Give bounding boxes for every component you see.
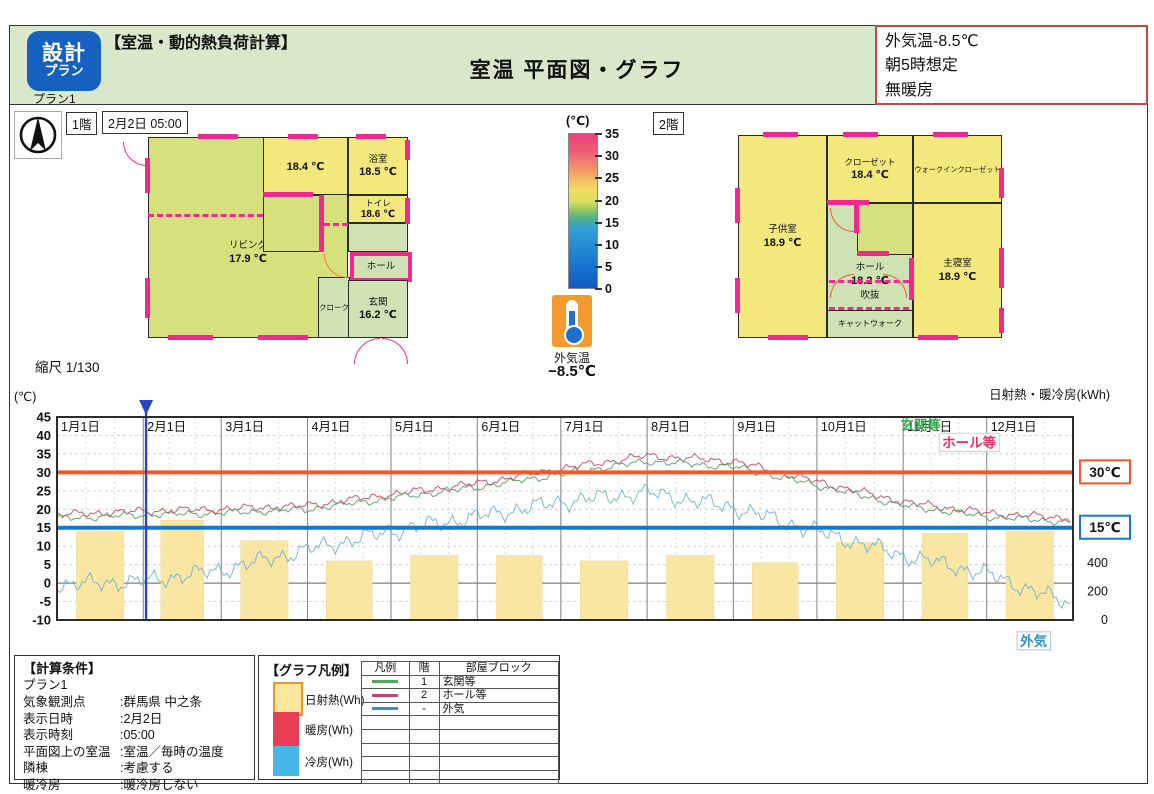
room-kids: 子供室 18.9 ℃ — [738, 135, 827, 338]
scale-tick: 0 — [605, 284, 635, 294]
legend-empty-row — [362, 729, 559, 743]
svg-text:15: 15 — [37, 520, 51, 535]
wall-accent — [405, 198, 410, 224]
graph-legend-box: 【グラフ凡例】 日射熱(Wh) 暖房(Wh) 冷房(Wh) 凡例 階 部屋ブロッ… — [258, 655, 560, 780]
svg-text:-10: -10 — [32, 613, 51, 628]
section-title: 【室温・動的熱負荷計算】 — [105, 29, 297, 53]
color-scale-unit: (℃) — [566, 113, 589, 128]
svg-text:200: 200 — [1087, 585, 1108, 599]
svg-text:0: 0 — [1101, 613, 1108, 627]
wall-accent — [763, 132, 798, 137]
legend-row-outdoor: - 外気 — [362, 702, 559, 716]
outdoor-thermometer-icon — [552, 295, 592, 347]
legend-swatch-heating — [273, 712, 299, 746]
legend-swatch-cooling-label: 冷房(Wh) — [305, 754, 353, 770]
wall-accent — [145, 278, 150, 318]
svg-text:400: 400 — [1087, 556, 1108, 570]
wall-accent — [843, 132, 878, 137]
room-hall-1f: ホール — [350, 252, 412, 282]
legend-empty-row — [362, 757, 559, 771]
wall-accent — [258, 335, 308, 340]
note-line-no-heating: 無暖房 — [885, 79, 1138, 103]
legend-empty-row — [362, 743, 559, 757]
svg-text:0: 0 — [44, 576, 51, 591]
legend-table-header-row: 凡例 階 部屋ブロック — [362, 662, 559, 676]
room-catwalk: キャットウォーク — [827, 310, 913, 338]
scale-tick: 15 — [605, 218, 635, 228]
svg-text:40: 40 — [37, 428, 51, 443]
svg-text:2月1日: 2月1日 — [147, 420, 186, 434]
wall-accent — [999, 168, 1004, 198]
svg-text:5: 5 — [44, 557, 51, 572]
svg-text:12月1日: 12月1日 — [991, 420, 1037, 434]
svg-text:25: 25 — [37, 483, 51, 498]
wall-accent — [356, 134, 386, 139]
wall-accent — [999, 248, 1004, 288]
svg-text:9月1日: 9月1日 — [737, 420, 776, 434]
wall-accent — [198, 134, 238, 139]
legend-title: 【グラフ凡例】 — [266, 660, 357, 679]
wall-accent — [288, 134, 318, 139]
legend-swatch-heating-label: 暖房(Wh) — [305, 722, 353, 738]
svg-text:外気: 外気 — [1020, 633, 1048, 649]
conditions-title: 【計算条件】 — [23, 660, 246, 677]
legend-empty-row — [362, 716, 559, 730]
svg-text:-5: -5 — [39, 594, 51, 609]
scale-tick: 35 — [605, 129, 635, 139]
svg-text:30: 30 — [37, 465, 51, 480]
wall-accent — [768, 335, 808, 340]
floor1-plan: リビング 17.9 ℃ 18.4 ℃ 浴室 18.5 ℃ トイレ 18.6 ℃ … — [138, 128, 428, 350]
floor1-tab[interactable]: 1階 — [66, 112, 97, 135]
svg-text:4月1日: 4月1日 — [312, 420, 351, 434]
condition-row: 暖冷房:暖冷房しない — [23, 777, 246, 794]
svg-text:7月1日: 7月1日 — [565, 420, 604, 434]
condition-row: 表示時刻:05:00 — [23, 727, 246, 744]
room-wic: ウォークインクローゼット — [913, 135, 1002, 203]
wall-accent — [909, 258, 914, 300]
room-master: 主寝室 18.9 ℃ — [913, 203, 1002, 338]
condition-row: 隣棟:考慮する — [23, 760, 246, 777]
svg-text:日射熱・暖冷房(kWh): 日射熱・暖冷房(kWh) — [989, 387, 1110, 402]
legend-swatch-solar — [273, 682, 303, 716]
temperature-color-scale: 35 30 25 20 15 10 5 0 — [568, 133, 598, 289]
compass-box — [14, 111, 62, 159]
svg-text:(℃): (℃) — [14, 390, 36, 404]
calc-conditions-box: 【計算条件】 プラン1 気象観測点:群馬県 中之条 表示日時:2月2日 表示時刻… — [14, 655, 255, 780]
condition-row: 平面図上の室温:室温／毎時の温度 — [23, 744, 246, 761]
wall-accent-dashed — [829, 307, 909, 310]
door-arc-icon — [382, 338, 408, 364]
svg-text:玄関等: 玄関等 — [900, 417, 941, 433]
svg-text:10月1日: 10月1日 — [821, 420, 867, 434]
note-line-time: 朝5時想定 — [885, 54, 1138, 78]
scale-note: 縮尺 1/130 — [35, 356, 100, 376]
room-entrance: 玄関 16.2 ℃ — [348, 280, 408, 338]
svg-text:45: 45 — [37, 410, 51, 425]
condition-row: 表示日時:2月2日 — [23, 711, 246, 728]
legend-swatch-cooling — [273, 746, 299, 776]
series-line-swatch — [372, 694, 398, 697]
wall-accent — [405, 140, 410, 160]
scale-tick: 25 — [605, 173, 635, 183]
room-washroom: 18.4 ℃ — [263, 137, 348, 195]
svg-text:1月1日: 1月1日 — [61, 420, 100, 434]
wall-accent — [168, 335, 213, 340]
svg-text:8月1日: 8月1日 — [651, 420, 690, 434]
legend-swatch-solar-label: 日射熱(Wh) — [305, 692, 364, 708]
floor2-plan: 子供室 18.9 ℃ クローゼット 18.4 ℃ ウォークインクローゼット ホー… — [723, 128, 1013, 350]
room-back-hall — [348, 223, 408, 252]
svg-text:15℃: 15℃ — [1089, 520, 1120, 535]
scale-tick: 10 — [605, 240, 635, 250]
condition-note-box: 外気温-8.5℃ 朝5時想定 無暖房 — [875, 25, 1148, 105]
svg-text:35: 35 — [37, 446, 51, 461]
wall-accent — [827, 200, 869, 205]
wall-accent — [999, 308, 1004, 333]
room-toilet: トイレ 18.6 ℃ — [348, 195, 408, 223]
wall-accent — [854, 203, 859, 233]
wall-accent — [918, 335, 958, 340]
legend-series-table: 凡例 階 部屋ブロック 1 玄関等 2 ホール等 - 外気 — [361, 661, 559, 784]
wall-accent — [857, 251, 889, 256]
series-line-swatch — [372, 680, 398, 683]
door-arc-icon — [354, 338, 380, 364]
svg-text:3月1日: 3月1日 — [225, 420, 264, 434]
condition-row: プラン1 — [23, 677, 246, 694]
legend-row-hall: 2 ホール等 — [362, 689, 559, 703]
scale-tick: 20 — [605, 196, 635, 206]
room-void-label: 吹抜 — [860, 290, 879, 302]
wall-accent — [735, 278, 740, 313]
room-stairwell — [857, 203, 913, 255]
plan-name-label: プラン1 — [33, 90, 76, 107]
annual-temperature-chart: 1月1日2月1日3月1日4月1日5月1日6月1日7月1日8月1日9月1日10月1… — [0, 385, 1154, 665]
condition-row: 気象観測点:群馬県 中之条 — [23, 694, 246, 711]
svg-text:5月1日: 5月1日 — [395, 420, 434, 434]
svg-text:10: 10 — [37, 539, 51, 554]
svg-text:30℃: 30℃ — [1089, 465, 1120, 480]
legend-empty-row — [362, 770, 559, 784]
note-line-outdoor-temp: 外気温-8.5℃ — [885, 30, 1138, 54]
north-arrow-icon — [15, 112, 61, 158]
svg-text:20: 20 — [37, 502, 51, 517]
wall-accent-dashed — [148, 214, 263, 217]
floor2-tab[interactable]: 2階 — [653, 112, 684, 135]
svg-text:6月1日: 6月1日 — [481, 420, 520, 434]
wall-accent — [933, 132, 968, 137]
wall-accent — [263, 192, 313, 197]
room-closet: クローゼット 18.4 ℃ — [827, 135, 913, 203]
svg-text:ホール等: ホール等 — [942, 434, 996, 450]
outdoor-temp-value: −8.5℃ — [538, 362, 606, 380]
room-nook — [263, 195, 322, 252]
room-cloak: クローク — [318, 277, 350, 338]
scale-tick: 30 — [605, 151, 635, 161]
wall-accent — [735, 188, 740, 223]
legend-row-entrance: 1 玄関等 — [362, 675, 559, 689]
wall-accent-dashed — [324, 223, 348, 226]
scale-tick: 5 — [605, 262, 635, 272]
room-bathroom: 浴室 18.5 ℃ — [348, 137, 408, 195]
series-line-swatch — [372, 707, 398, 710]
